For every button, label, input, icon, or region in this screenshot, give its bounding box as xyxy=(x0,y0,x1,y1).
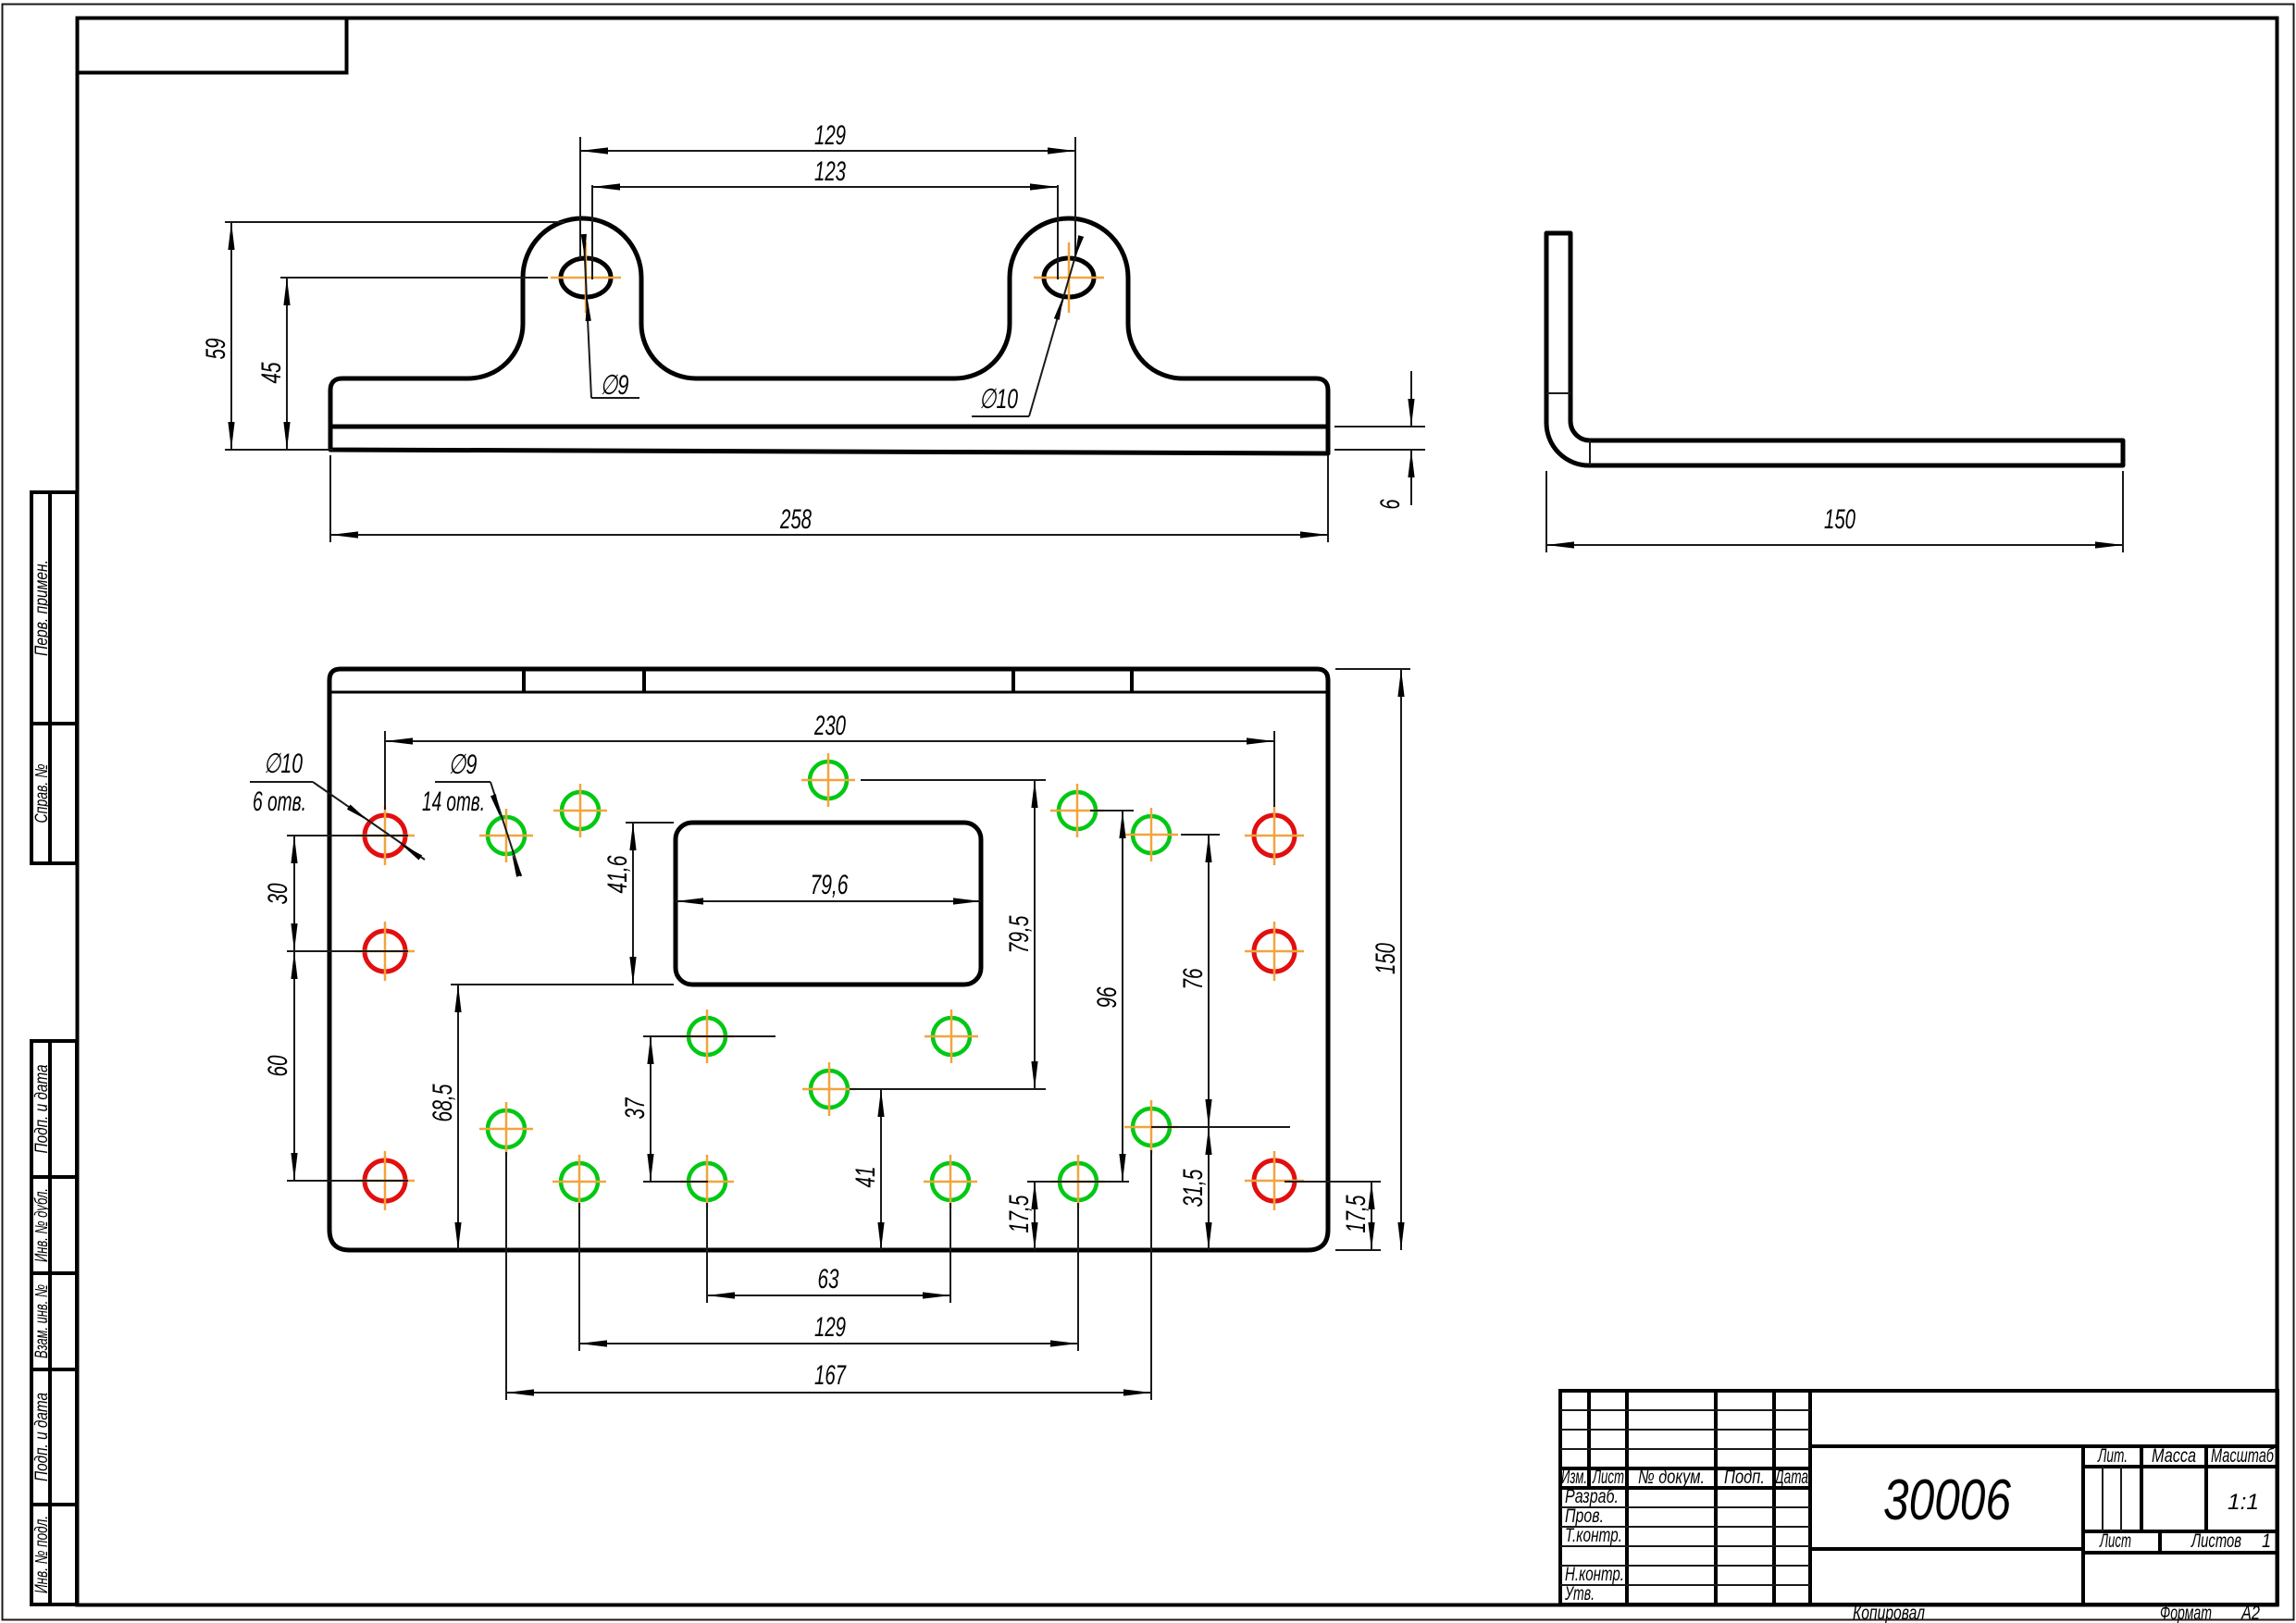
svg-text:79,6: 79,6 xyxy=(811,870,849,900)
svg-text:258: 258 xyxy=(779,504,812,535)
svg-text:Т.контр.: Т.контр. xyxy=(1565,1525,1622,1546)
svg-text:Масштаб: Масштаб xyxy=(2211,1445,2275,1467)
svg-text:Перв. примен.: Перв. примен. xyxy=(32,560,52,656)
svg-text:∅10: ∅10 xyxy=(979,384,1018,415)
svg-text:123: 123 xyxy=(814,156,846,187)
svg-text:1: 1 xyxy=(2262,1530,2271,1552)
svg-text:∅9: ∅9 xyxy=(601,370,629,401)
svg-text:Инв. № дубл.: Инв. № дубл. xyxy=(32,1188,52,1262)
svg-text:Утв.: Утв. xyxy=(1564,1583,1595,1604)
svg-text:А2: А2 xyxy=(2240,1603,2260,1623)
svg-text:30006: 30006 xyxy=(1883,1468,2011,1532)
svg-text:Подп. и дата: Подп. и дата xyxy=(32,1065,52,1154)
svg-text:Лит.: Лит. xyxy=(2097,1445,2128,1467)
svg-text:Дата: Дата xyxy=(1774,1467,1808,1488)
svg-text:6 отв.: 6 отв. xyxy=(253,787,306,817)
svg-text:Пров.: Пров. xyxy=(1565,1505,1604,1527)
svg-text:Взам. инв. №: Взам. инв. № xyxy=(32,1284,52,1358)
svg-text:150: 150 xyxy=(1824,504,1855,535)
svg-text:∅9: ∅9 xyxy=(449,750,478,780)
svg-text:Листов: Листов xyxy=(2191,1530,2241,1552)
svg-text:Инв. № подл.: Инв. № подл. xyxy=(32,1516,52,1593)
svg-text:76: 76 xyxy=(1178,968,1209,989)
svg-text:60: 60 xyxy=(263,1055,293,1076)
svg-text:129: 129 xyxy=(814,1312,846,1343)
svg-text:59: 59 xyxy=(201,338,231,359)
svg-text:167: 167 xyxy=(814,1360,847,1391)
svg-text:68,5: 68,5 xyxy=(428,1084,458,1121)
svg-text:Подп. и дата: Подп. и дата xyxy=(32,1393,52,1481)
svg-text:45: 45 xyxy=(256,362,287,383)
svg-text:Подп.: Подп. xyxy=(1724,1467,1765,1488)
svg-text:Н.контр.: Н.контр. xyxy=(1565,1564,1624,1585)
svg-text:150: 150 xyxy=(1371,943,1401,974)
svg-text:230: 230 xyxy=(813,711,846,741)
svg-text:Лист: Лист xyxy=(1592,1467,1624,1488)
svg-text:Масса: Масса xyxy=(2152,1445,2196,1467)
svg-text:79,5: 79,5 xyxy=(1004,915,1035,953)
svg-text:Изм.: Изм. xyxy=(1561,1467,1587,1488)
svg-text:96: 96 xyxy=(1092,986,1123,1008)
svg-text:6: 6 xyxy=(1375,499,1406,509)
svg-text:∅10: ∅10 xyxy=(264,749,303,779)
svg-text:17,5: 17,5 xyxy=(1341,1195,1371,1233)
svg-text:41: 41 xyxy=(850,1167,881,1188)
svg-text:63: 63 xyxy=(818,1264,839,1295)
svg-text:17,5: 17,5 xyxy=(1004,1195,1035,1233)
svg-text:Формат: Формат xyxy=(2160,1603,2212,1623)
svg-text:14 отв.: 14 отв. xyxy=(422,787,485,817)
svg-text:30: 30 xyxy=(263,883,293,904)
svg-text:37: 37 xyxy=(620,1097,651,1120)
svg-text:Справ. №: Справ. № xyxy=(32,764,52,824)
svg-text:41,6: 41,6 xyxy=(602,855,633,893)
svg-text:31,5: 31,5 xyxy=(1178,1169,1209,1207)
svg-text:1:1: 1:1 xyxy=(2228,1490,2259,1515)
svg-text:129: 129 xyxy=(814,120,846,151)
svg-text:Разраб.: Разраб. xyxy=(1565,1486,1619,1507)
svg-text:Лист: Лист xyxy=(2099,1530,2131,1552)
svg-text:№ докум.: № докум. xyxy=(1638,1467,1705,1488)
svg-text:Копировал: Копировал xyxy=(1853,1603,1925,1623)
